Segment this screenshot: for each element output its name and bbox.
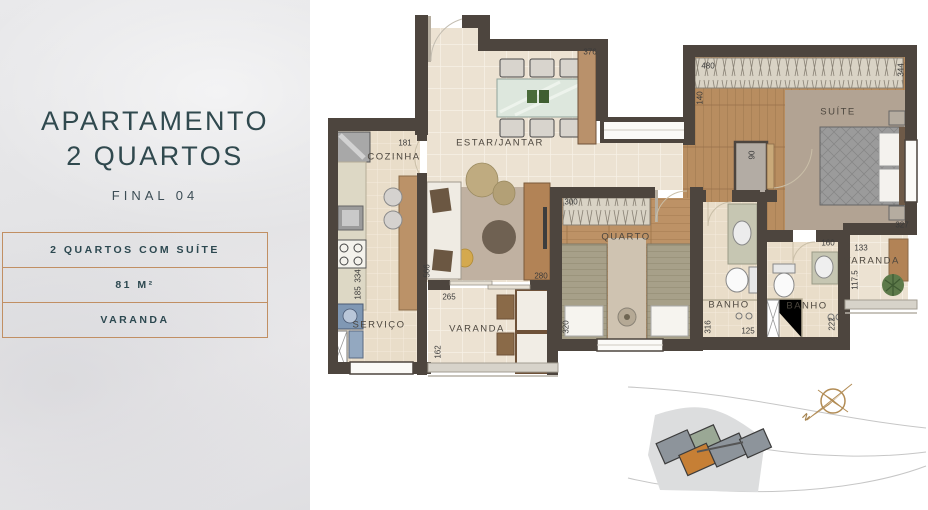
sideboard bbox=[578, 48, 596, 144]
entrance-opening bbox=[428, 15, 462, 28]
toilet bbox=[773, 264, 795, 273]
lounge-chair bbox=[516, 290, 550, 331]
sliding-door bbox=[488, 285, 530, 289]
table-centerpiece bbox=[527, 90, 537, 103]
suite-door bbox=[767, 144, 774, 189]
nightstand bbox=[889, 111, 905, 125]
window bbox=[350, 362, 413, 374]
side-table bbox=[497, 295, 514, 319]
hall-closet bbox=[735, 142, 767, 197]
floorplan-drawing bbox=[0, 0, 928, 510]
bar-stool bbox=[384, 211, 402, 229]
sink bbox=[815, 256, 833, 278]
window bbox=[905, 140, 917, 202]
balcony-railing bbox=[845, 300, 917, 309]
bar-stool bbox=[384, 188, 402, 206]
wardrobe bbox=[563, 198, 650, 225]
side-table bbox=[497, 333, 514, 355]
entrance-door bbox=[428, 16, 431, 62]
apartment-floorplan-page: APARTAMENTO 2 QUARTOS FINAL 04 2 QUARTOS… bbox=[0, 0, 928, 510]
site-map bbox=[628, 384, 926, 492]
tv bbox=[543, 207, 547, 249]
pouf bbox=[493, 181, 515, 205]
suite-wardrobe bbox=[695, 58, 903, 88]
sliding-door bbox=[450, 281, 492, 285]
toilet bbox=[749, 267, 758, 293]
nightstand bbox=[889, 206, 905, 220]
round-rug bbox=[482, 220, 516, 254]
sink bbox=[733, 221, 751, 245]
balcony-railing bbox=[428, 363, 558, 372]
laundry-tank bbox=[349, 331, 363, 358]
headboard bbox=[899, 127, 905, 205]
compass-icon bbox=[807, 384, 852, 420]
dining-table-set bbox=[497, 59, 589, 137]
